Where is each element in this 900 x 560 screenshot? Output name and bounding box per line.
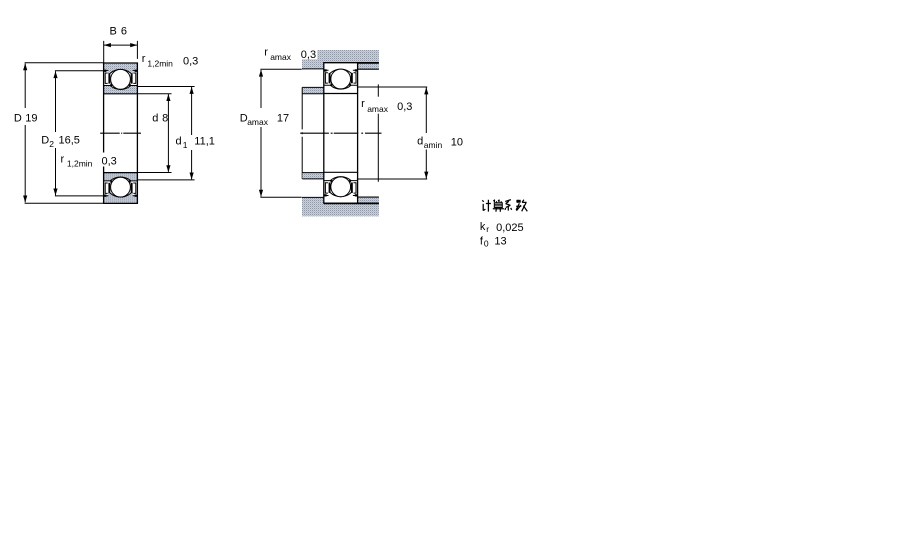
svg-text:0,3: 0,3	[183, 55, 198, 67]
svg-text:B: B	[110, 26, 117, 38]
svg-text:0,3: 0,3	[102, 156, 117, 168]
svg-text:amax: amax	[367, 104, 389, 114]
svg-text:r: r	[361, 98, 365, 110]
svg-text:0,3: 0,3	[397, 101, 412, 113]
svg-text:d: d	[417, 135, 423, 147]
svg-text:2: 2	[49, 139, 54, 149]
svg-text:1: 1	[183, 140, 188, 150]
svg-text:amax: amax	[270, 52, 292, 62]
svg-text:13: 13	[494, 236, 506, 248]
svg-text:0: 0	[484, 238, 489, 248]
svg-text:k: k	[480, 221, 486, 233]
svg-text:6: 6	[121, 26, 127, 38]
svg-text:19: 19	[25, 113, 37, 125]
svg-text:0,3: 0,3	[301, 49, 316, 61]
svg-text:17: 17	[277, 113, 289, 125]
svg-text:r: r	[142, 53, 146, 65]
svg-text:1,2min: 1,2min	[67, 158, 93, 168]
svg-text:D: D	[41, 135, 49, 147]
svg-text:D: D	[14, 113, 22, 125]
svg-text:r: r	[486, 224, 489, 234]
svg-text:1,2min: 1,2min	[147, 59, 173, 69]
svg-text:0,025: 0,025	[496, 222, 524, 234]
svg-text:d: d	[176, 136, 182, 148]
svg-text:amin: amin	[424, 140, 443, 150]
svg-text:11,1: 11,1	[194, 136, 215, 148]
svg-text:16,5: 16,5	[59, 135, 80, 147]
svg-text:amax: amax	[247, 117, 269, 127]
svg-text:r: r	[61, 154, 65, 166]
svg-text:10: 10	[451, 137, 463, 149]
svg-text:8: 8	[162, 112, 168, 124]
svg-text:d: d	[152, 112, 158, 124]
svg-text:r: r	[264, 46, 268, 58]
